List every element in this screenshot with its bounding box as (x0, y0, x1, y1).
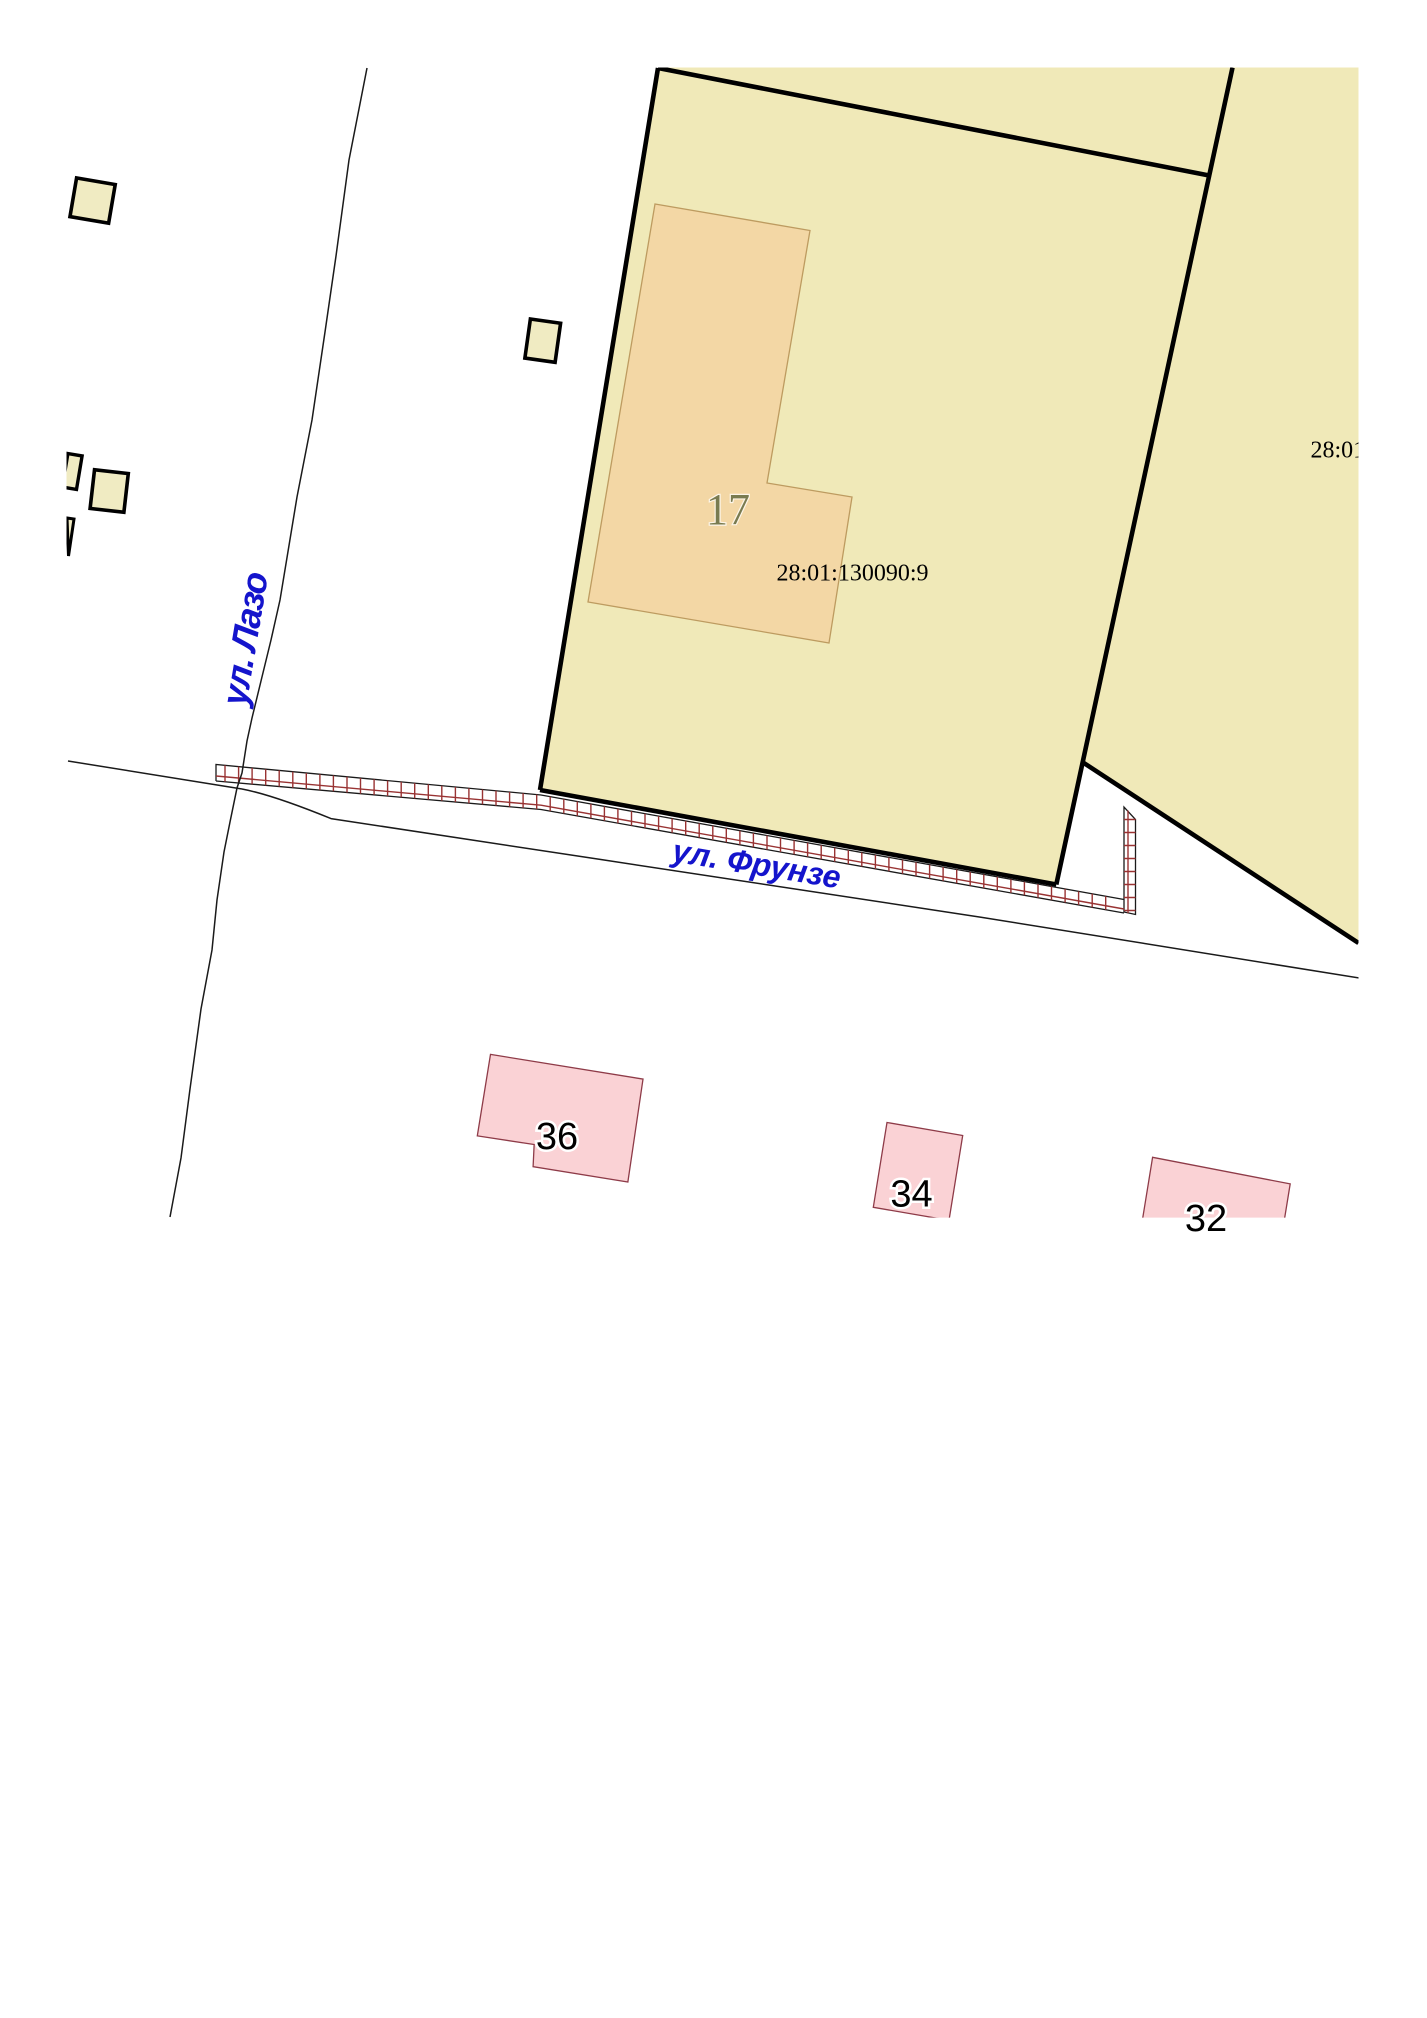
svg-text:36: 36 (536, 1116, 578, 1158)
svg-text:28:01:130090:9: 28:01:130090:9 (776, 561, 928, 587)
svg-text:17: 17 (706, 485, 750, 534)
svg-text:32: 32 (1185, 1198, 1227, 1240)
svg-text:34: 34 (890, 1173, 932, 1215)
